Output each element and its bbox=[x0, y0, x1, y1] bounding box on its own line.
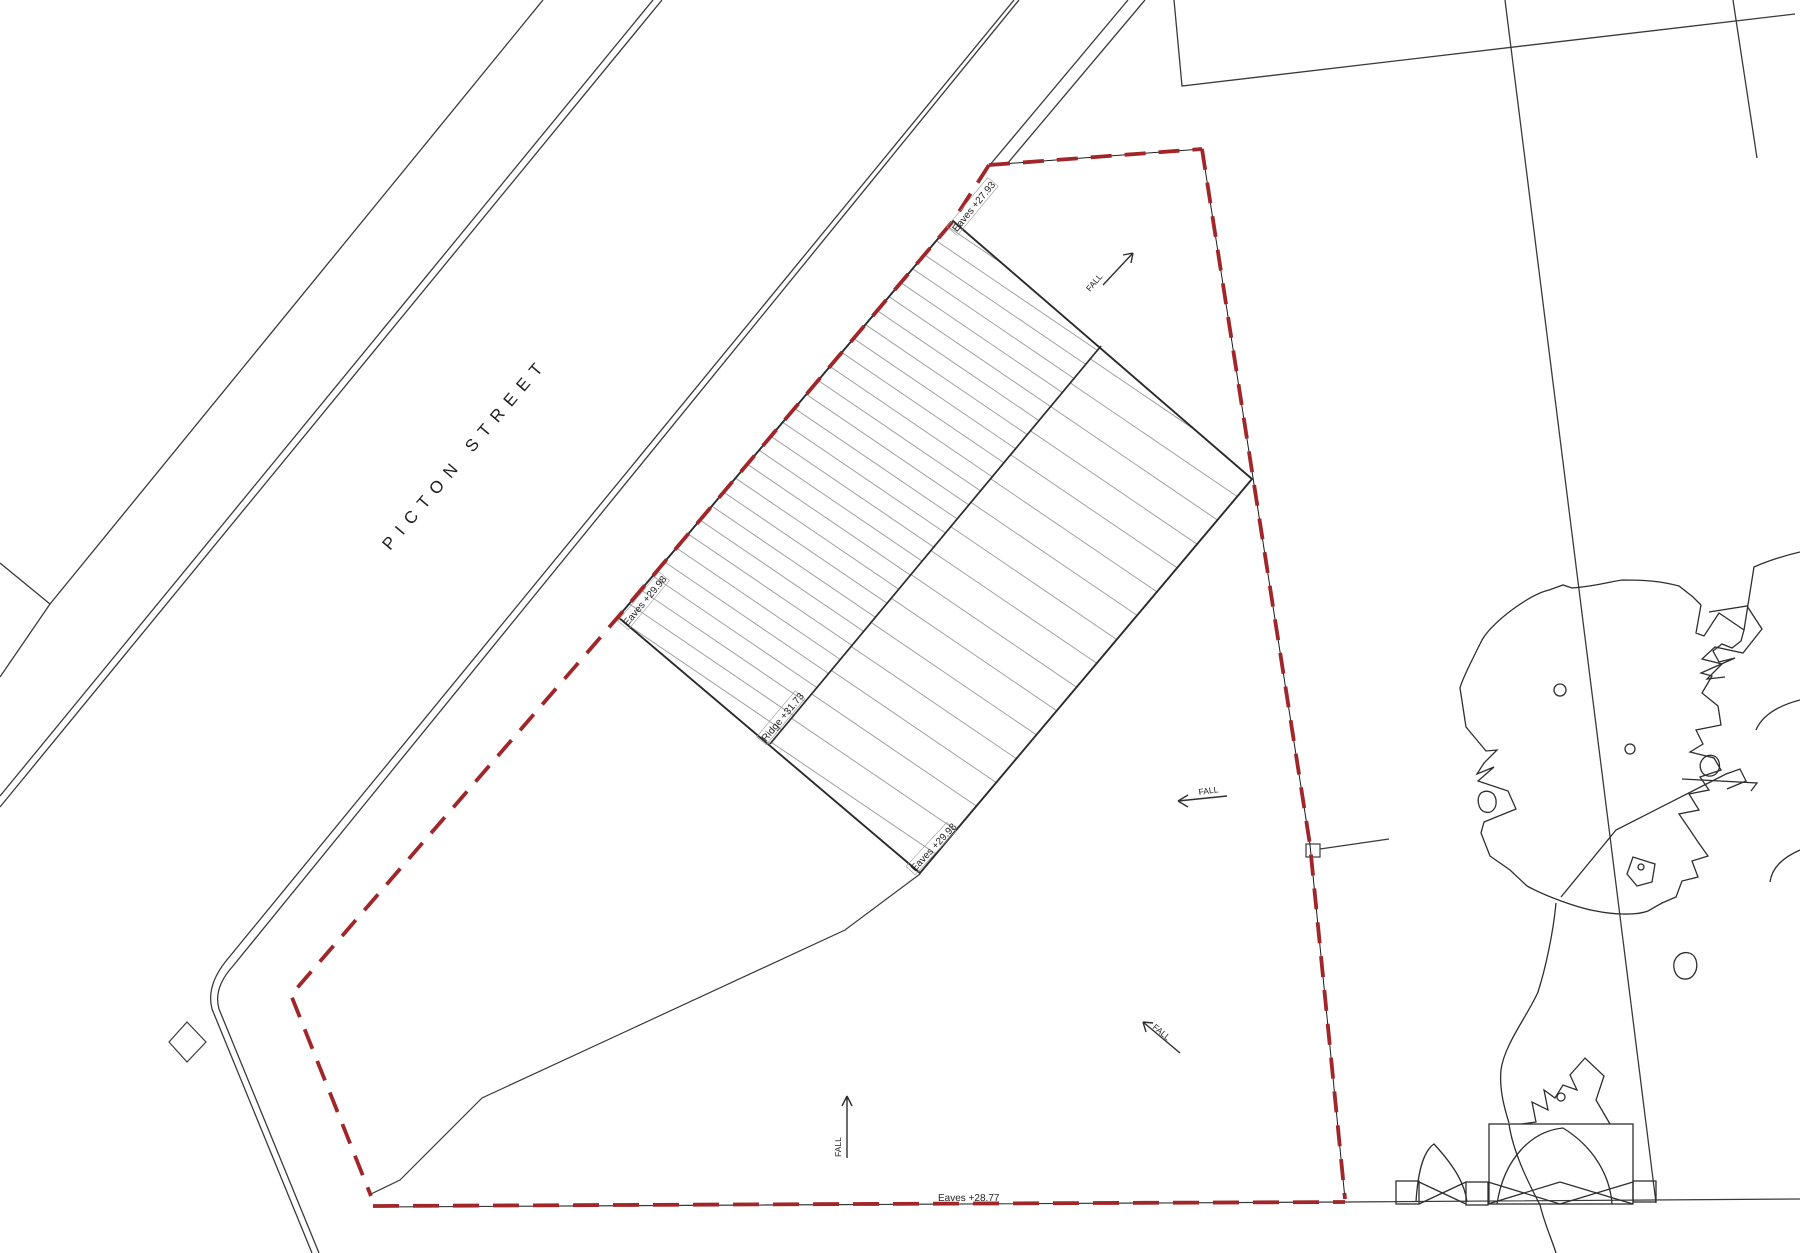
svg-text:Ridge +31.73: Ridge +31.73 bbox=[760, 691, 807, 744]
svg-text:FALL: FALL bbox=[1151, 1022, 1173, 1043]
svg-text:FALL: FALL bbox=[1198, 784, 1219, 797]
svg-text:PICTON STREET: PICTON STREET bbox=[379, 353, 552, 553]
svg-text:Eaves +29.98: Eaves +29.98 bbox=[622, 574, 670, 628]
svg-text:Eaves +28.77: Eaves +28.77 bbox=[938, 1193, 1000, 1204]
svg-text:Eaves +27.93: Eaves +27.93 bbox=[951, 180, 999, 235]
svg-text:Eaves +29.98: Eaves +29.98 bbox=[909, 821, 959, 874]
svg-text:FALL: FALL bbox=[1084, 271, 1105, 293]
svg-text:FALL: FALL bbox=[833, 1137, 843, 1157]
